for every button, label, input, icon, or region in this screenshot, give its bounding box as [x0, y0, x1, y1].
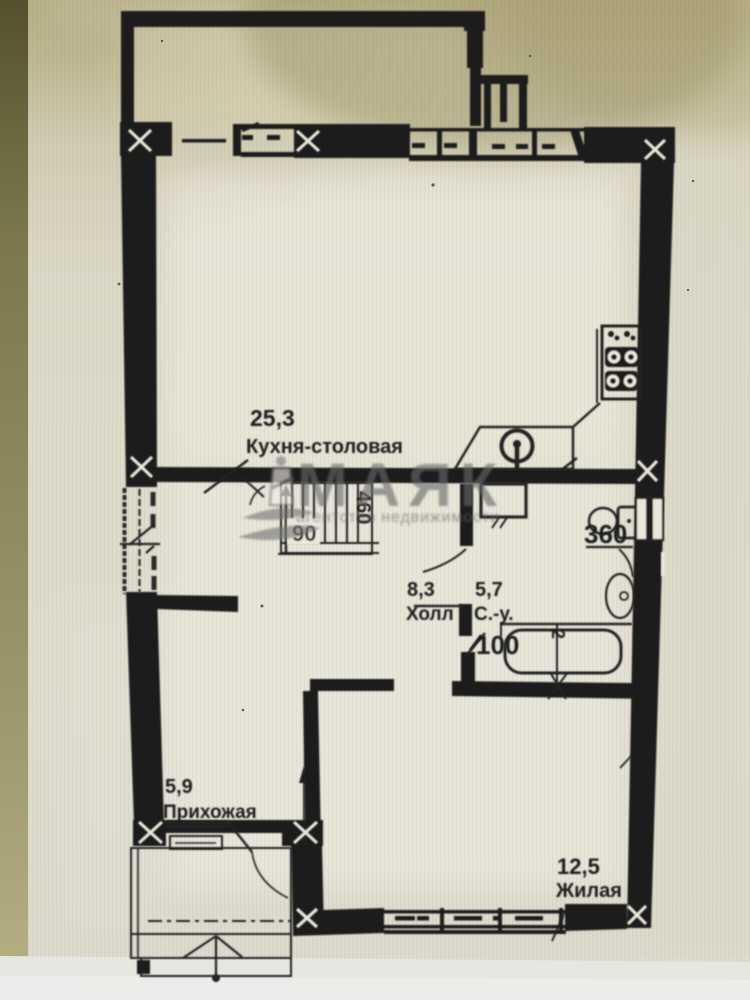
svg-text:Холл: Холл — [406, 604, 454, 625]
svg-text:5,9: 5,9 — [165, 776, 193, 798]
svg-text:агентство недвижимости: агентство недвижимости — [296, 509, 500, 526]
svg-text:8,3: 8,3 — [407, 579, 435, 601]
svg-text:Жилая: Жилая — [555, 880, 622, 902]
svg-text:12,5: 12,5 — [557, 854, 600, 879]
svg-text:25,3: 25,3 — [250, 405, 295, 431]
svg-text:100: 100 — [476, 630, 519, 660]
svg-text:2: 2 — [548, 629, 568, 639]
svg-text:5,7: 5,7 — [475, 579, 503, 601]
svg-text:С.-у.: С.-у. — [474, 604, 514, 625]
svg-text:360: 360 — [584, 519, 627, 549]
svg-text:Прихожая: Прихожая — [163, 802, 257, 823]
